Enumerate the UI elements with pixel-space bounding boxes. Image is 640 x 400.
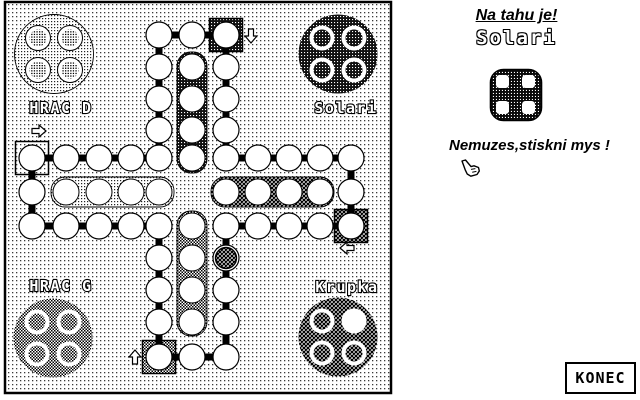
home-lane-cell-solari[interactable]: [179, 117, 205, 143]
track-cell[interactable]: [307, 213, 333, 239]
track-cell[interactable]: [213, 213, 239, 239]
track-cell[interactable]: [146, 54, 172, 80]
game-piece-hrac-d[interactable]: [62, 30, 79, 47]
track-cell[interactable]: [213, 86, 239, 112]
home-lane-cell-solari[interactable]: [179, 145, 205, 171]
turn-heading: Na tahu je!: [393, 7, 640, 25]
track-cell[interactable]: [276, 213, 302, 239]
track-cell[interactable]: [118, 213, 144, 239]
game-board[interactable]: HRAC DSolariHRAC GKrupka: [0, 0, 393, 400]
track-cell[interactable]: [338, 213, 364, 239]
home-circle-hrac-g[interactable]: [14, 299, 93, 378]
status-message: Nemuzes,stiskni mys !: [449, 137, 610, 154]
game-piece-solari[interactable]: [346, 62, 363, 79]
game-piece-hrac-g[interactable]: [29, 346, 46, 363]
player-label-krupka: Krupka: [315, 278, 378, 296]
track-cell[interactable]: [245, 213, 271, 239]
track-cell[interactable]: [86, 145, 112, 171]
home-lane-cell-hrac-g[interactable]: [179, 309, 205, 335]
home-lane-cell-hrac-d[interactable]: [118, 179, 144, 205]
track-cell[interactable]: [213, 309, 239, 335]
home-slot-krupka[interactable]: [342, 309, 367, 334]
game-piece-solari[interactable]: [314, 62, 331, 79]
track-cell[interactable]: [213, 22, 239, 48]
game-piece-hrac-d[interactable]: [30, 30, 47, 47]
track-cell[interactable]: [213, 54, 239, 80]
game-piece-krupka[interactable]: [346, 345, 363, 362]
dice-pip: [522, 75, 535, 88]
game-piece-krupka[interactable]: [314, 313, 331, 330]
track-cell[interactable]: [146, 213, 172, 239]
player-label-solari: Solari: [314, 99, 377, 117]
home-circle-krupka[interactable]: [299, 298, 378, 377]
track-cell[interactable]: [146, 245, 172, 271]
track-cell[interactable]: [146, 309, 172, 335]
track-cell[interactable]: [146, 145, 172, 171]
track-cell[interactable]: [338, 145, 364, 171]
track-cell[interactable]: [213, 344, 239, 370]
turn-player-name: Solari: [393, 27, 640, 49]
track-cell[interactable]: [146, 22, 172, 48]
home-lane-cell-krupka[interactable]: [245, 179, 271, 205]
game-piece-hrac-d[interactable]: [30, 62, 47, 79]
dice-pip: [496, 101, 509, 114]
pointing-hand-icon: [459, 158, 483, 182]
konec-button[interactable]: KONEC: [565, 362, 636, 394]
track-cell[interactable]: [213, 145, 239, 171]
player-label-hrac-g: HRAC G: [29, 277, 92, 295]
track-cell[interactable]: [146, 117, 172, 143]
track-cell[interactable]: [307, 145, 333, 171]
track-cell[interactable]: [19, 213, 45, 239]
game-piece-hrac-g[interactable]: [61, 346, 78, 363]
track-cell[interactable]: [118, 145, 144, 171]
home-lane-cell-hrac-g[interactable]: [179, 245, 205, 271]
track-cell[interactable]: [86, 213, 112, 239]
game-piece-hrac-d[interactable]: [62, 62, 79, 79]
track-cell[interactable]: [245, 145, 271, 171]
game-piece-krupka[interactable]: [314, 345, 331, 362]
home-lane-cell-krupka[interactable]: [276, 179, 302, 205]
home-circle-solari[interactable]: [299, 15, 378, 94]
track-cell[interactable]: [53, 213, 79, 239]
game-piece-solari[interactable]: [314, 30, 331, 47]
board-svg[interactable]: HRAC DSolariHRAC GKrupka: [0, 0, 393, 400]
track-cell[interactable]: [213, 117, 239, 143]
track-cell[interactable]: [179, 22, 205, 48]
dice-pip: [522, 101, 535, 114]
game-piece-hrac-g[interactable]: [29, 314, 46, 331]
game-screen: HRAC DSolariHRAC GKrupka Na tahu je! Sol…: [0, 0, 640, 400]
dice-icon[interactable]: [489, 68, 543, 122]
home-lane-cell-hrac-d[interactable]: [53, 179, 79, 205]
game-piece-solari[interactable]: [346, 30, 363, 47]
track-cell[interactable]: [19, 179, 45, 205]
game-piece-krupka[interactable]: [216, 248, 237, 269]
home-lane-cell-krupka[interactable]: [307, 179, 333, 205]
home-lane-cell-hrac-d[interactable]: [146, 179, 172, 205]
track-cell[interactable]: [276, 145, 302, 171]
game-piece-hrac-g[interactable]: [61, 314, 78, 331]
track-cell[interactable]: [146, 344, 172, 370]
dice-pip: [496, 75, 509, 88]
track-cell[interactable]: [213, 277, 239, 303]
track-cell[interactable]: [19, 145, 45, 171]
track-cell[interactable]: [146, 277, 172, 303]
home-lane-cell-hrac-d[interactable]: [86, 179, 112, 205]
track-cell[interactable]: [338, 179, 364, 205]
home-circle-hrac-d[interactable]: [15, 15, 94, 94]
track-cell[interactable]: [146, 86, 172, 112]
home-lane-cell-hrac-g[interactable]: [179, 213, 205, 239]
track-cell[interactable]: [179, 344, 205, 370]
player-label-hrac-d: HRAC D: [29, 99, 92, 117]
home-lane-cell-solari[interactable]: [179, 86, 205, 112]
home-lane-cell-krupka[interactable]: [213, 179, 239, 205]
home-lane-cell-solari[interactable]: [179, 54, 205, 80]
track-cell[interactable]: [53, 145, 79, 171]
home-lane-cell-hrac-g[interactable]: [179, 277, 205, 303]
